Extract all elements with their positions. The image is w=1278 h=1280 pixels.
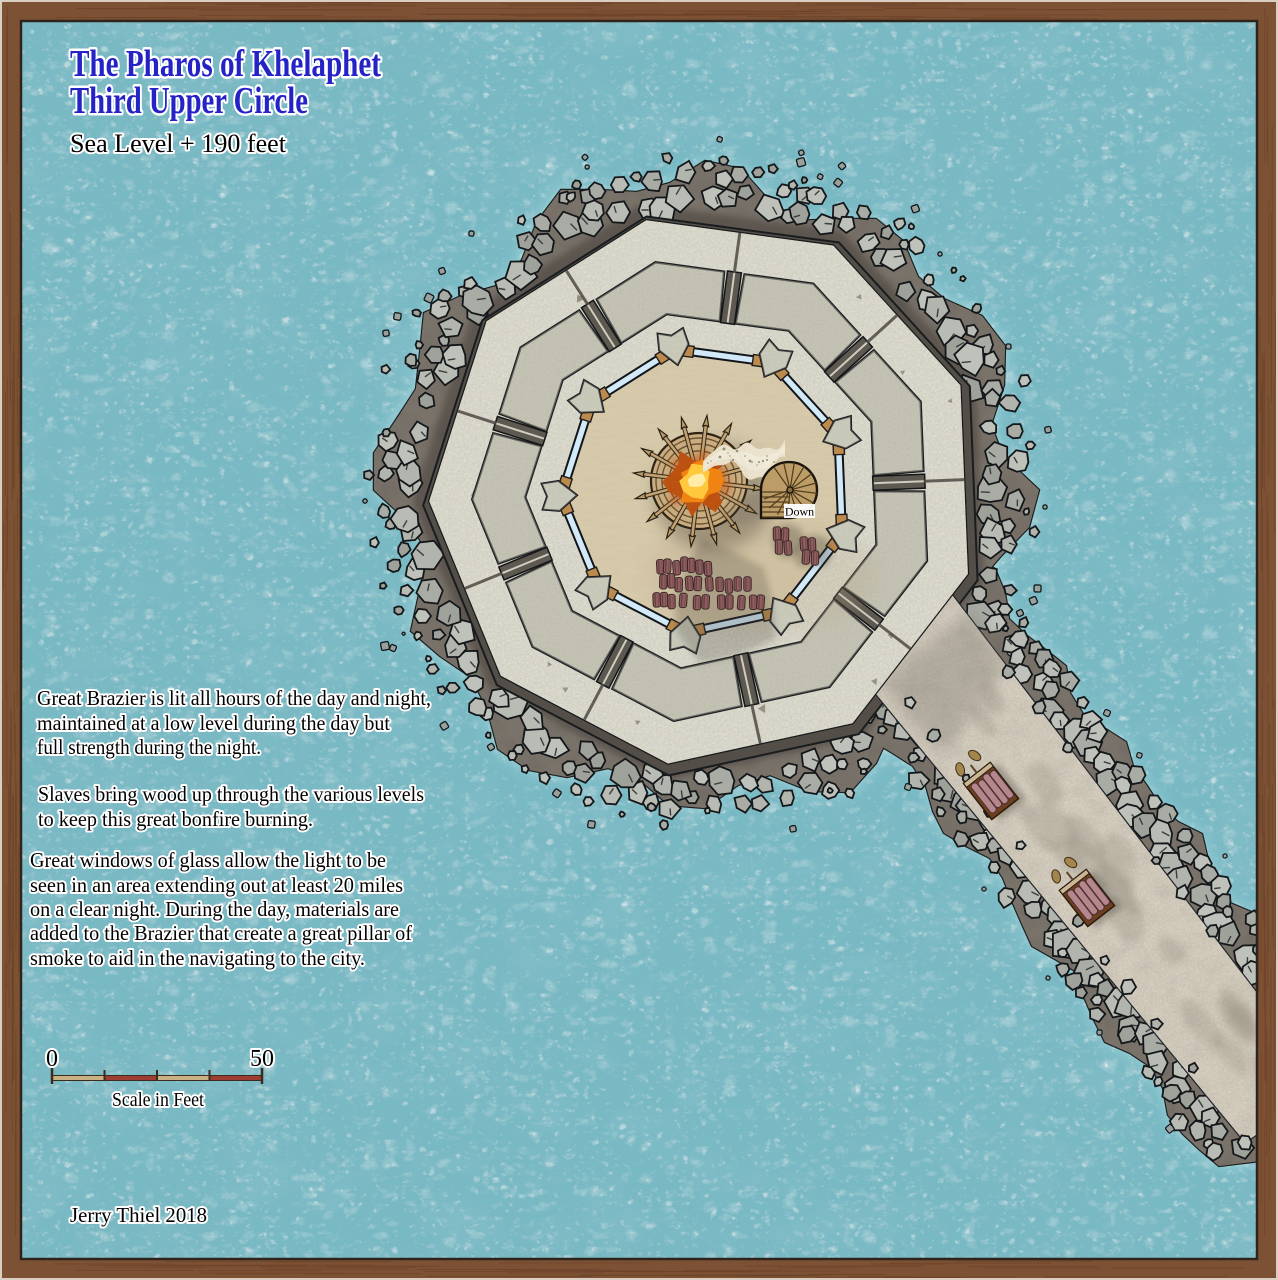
svg-text:seen in an area extending out: seen in an area extending out at least 2… (30, 873, 403, 897)
svg-text:added to the Brazier that crea: added to the Brazier that create a great… (30, 921, 413, 945)
svg-text:Jerry Thiel 2018: Jerry Thiel 2018 (70, 1203, 207, 1227)
svg-text:Sea Level + 190 feet: Sea Level + 190 feet (70, 129, 287, 158)
svg-text:Third Upper Circle: Third Upper Circle (70, 80, 308, 122)
svg-text:to keep this great bonfire bur: to keep this great bonfire burning. (38, 807, 313, 831)
svg-text:full strength during the night: full strength during the night. (37, 735, 261, 759)
svg-text:Slaves bring wood up through t: Slaves bring wood up through the various… (38, 782, 424, 806)
svg-text:Great Brazier is lit all hours: Great Brazier is lit all hours of the da… (37, 686, 431, 710)
svg-text:Great windows of glass allow t: Great windows of glass allow the light t… (30, 848, 386, 872)
svg-text:on a clear night. During the d: on a clear night. During the day, materi… (30, 897, 399, 921)
svg-text:50: 50 (250, 1046, 274, 1072)
svg-text:maintained at a low level duri: maintained at a low level during the day… (37, 711, 390, 735)
svg-text:Scale in Feet: Scale in Feet (112, 1089, 204, 1111)
svg-text:The Pharos of Khelaphet: The Pharos of Khelaphet (70, 43, 381, 85)
svg-text:0: 0 (46, 1046, 58, 1072)
svg-text:smoke to aid in the navigating: smoke to aid in the navigating to the ci… (30, 946, 365, 970)
svg-text:Down: Down (785, 505, 814, 519)
